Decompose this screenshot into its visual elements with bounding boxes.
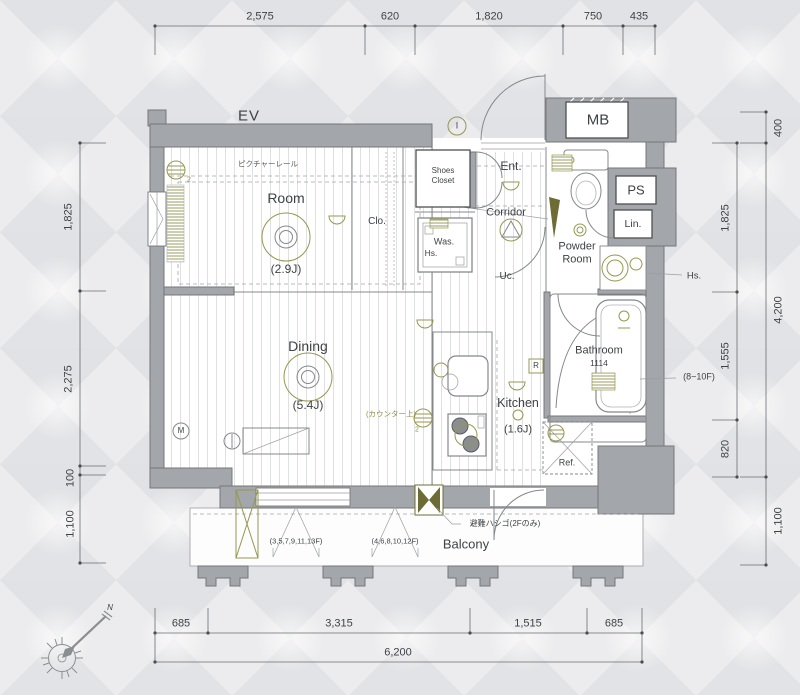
dim-right-outer-1: 4,200 bbox=[774, 296, 785, 324]
dim-bottom-total: 6,200 bbox=[384, 648, 412, 659]
label-balcony-floors-even: (4,6,8,10,12F) bbox=[371, 537, 418, 545]
label-north: N bbox=[107, 604, 113, 612]
label-dining-name: Dining bbox=[288, 339, 328, 353]
wall-left-lower bbox=[150, 246, 164, 470]
label-balcony-floors-odd: (3,5,7,9,11,13F) bbox=[270, 537, 323, 545]
label-water-heater: Hs. bbox=[425, 249, 438, 258]
dim-bottom-3: 685 bbox=[605, 619, 623, 630]
label-entrance: Ent. bbox=[500, 160, 521, 172]
dim-left-3: 1,100 bbox=[66, 510, 77, 538]
label-remote-mark: R bbox=[533, 362, 539, 370]
evac-hatch-icon bbox=[415, 485, 443, 515]
label-kitchen-name: Kitchen bbox=[497, 397, 539, 410]
label-mb: MB bbox=[587, 113, 610, 128]
label-counter-top: (カウンター上) bbox=[366, 410, 416, 418]
dim-bottom-1: 3,315 bbox=[325, 619, 353, 630]
label-shoes-line2: Closet bbox=[432, 177, 455, 185]
label-intercom-mark: I bbox=[456, 122, 459, 131]
floorplan-drawing bbox=[0, 0, 800, 695]
floorplan-canvas: EV MB PS Lin. Room (2.9J) Dining (5.4J) … bbox=[0, 0, 800, 695]
label-lin: Lin. bbox=[625, 219, 642, 230]
dim-left-2: 100 bbox=[66, 469, 77, 487]
bath-counter-icon bbox=[592, 373, 615, 390]
label-ev: EV bbox=[238, 109, 260, 124]
dim-top-1: 620 bbox=[381, 12, 399, 23]
label-kitchen-size: (1.6J) bbox=[504, 425, 532, 436]
label-meter-mark: M bbox=[178, 427, 185, 435]
wall-left-upper bbox=[150, 147, 164, 192]
dim-left-1: 2,275 bbox=[64, 365, 75, 393]
dim-right-inner-0: 1,825 bbox=[721, 204, 732, 232]
window-left bbox=[148, 192, 166, 246]
wall-top bbox=[150, 124, 432, 147]
label-balcony: Balcony bbox=[443, 538, 489, 551]
wall-bottom-step bbox=[150, 468, 232, 488]
label-closet: Clo. bbox=[368, 217, 386, 227]
label-mark-two-a: 2 bbox=[187, 177, 191, 184]
label-refrigerator: Ref. bbox=[559, 459, 576, 468]
shelf-strip bbox=[167, 185, 184, 262]
dim-top-0: 2,575 bbox=[246, 12, 274, 23]
washbasin-icon bbox=[600, 246, 646, 290]
label-bath-floors: (8~10F) bbox=[683, 373, 715, 382]
dim-top-3: 750 bbox=[584, 12, 602, 23]
label-powder-line2: Room bbox=[562, 255, 591, 266]
label-water-heater-right: Hs. bbox=[687, 271, 701, 281]
compass-north-icon bbox=[41, 611, 112, 679]
label-shoes-line1: Shoes bbox=[432, 167, 455, 175]
label-powder-line1: Powder bbox=[558, 242, 595, 253]
dim-top-4: 435 bbox=[630, 12, 648, 23]
label-washer: Was. bbox=[434, 238, 454, 247]
dim-right-outer-2: 1,100 bbox=[774, 507, 785, 535]
label-ps: PS bbox=[627, 184, 644, 197]
dim-right-inner-1: 1,555 bbox=[721, 342, 732, 370]
wall-bath-bottom bbox=[548, 416, 646, 422]
label-dining-size: (5.4J) bbox=[293, 399, 324, 411]
label-picture-rail: ピクチャーレール bbox=[238, 160, 298, 168]
entrance-door-arc bbox=[481, 74, 545, 140]
wall-bottomright-block bbox=[598, 446, 674, 514]
wall-room-divider bbox=[164, 287, 234, 295]
wall-bath-left bbox=[544, 292, 550, 418]
label-room-size: (2.9J) bbox=[271, 263, 302, 275]
label-utility-closet: Uc. bbox=[500, 272, 515, 282]
label-room-name: Room bbox=[267, 191, 304, 205]
dim-left-0: 1,825 bbox=[64, 203, 75, 231]
dim-right-inner-2: 820 bbox=[721, 440, 732, 458]
label-evac-ladder: 避難ハシゴ(2Fのみ) bbox=[470, 520, 541, 528]
footings bbox=[198, 566, 623, 586]
label-mark-two-b: 2 bbox=[415, 427, 419, 434]
dim-bottom-0: 685 bbox=[172, 619, 190, 630]
window-dining bbox=[256, 488, 350, 506]
label-corridor: Corridor bbox=[486, 208, 526, 219]
label-bathroom-name: Bathroom bbox=[575, 346, 623, 357]
dim-right-outer-0: 400 bbox=[774, 119, 785, 137]
powder-accessory-icon bbox=[552, 155, 572, 171]
dim-top-2: 1,820 bbox=[475, 12, 503, 23]
label-bathroom-size: 1114 bbox=[590, 359, 608, 368]
stove-icon bbox=[448, 414, 486, 456]
dim-bottom-2: 1,515 bbox=[514, 619, 542, 630]
